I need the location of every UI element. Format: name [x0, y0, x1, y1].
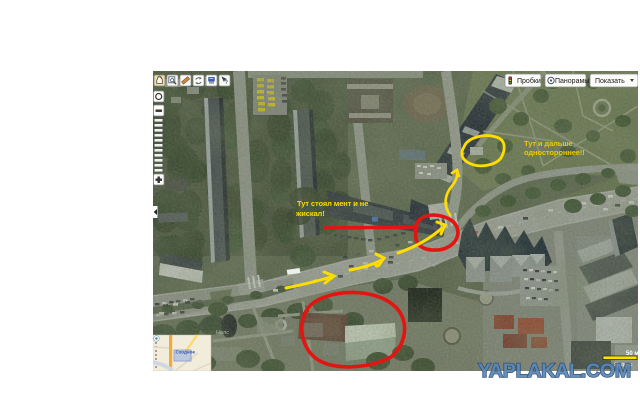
svg-text:Пробки: Пробки: [517, 77, 541, 85]
svg-text:Панорамы: Панорамы: [555, 78, 589, 85]
svg-text:Показать: Показать: [595, 78, 625, 85]
svg-text:одностороннее!!: одностороннее!!: [524, 148, 585, 157]
svg-text:Сходное: Сходное: [176, 350, 196, 355]
svg-text:YAPLAKAL.COM: YAPLAKAL.COM: [478, 360, 631, 381]
svg-text:Тут и дальше: Тут и дальше: [524, 139, 573, 148]
svg-text:жискал!: жискал!: [295, 209, 325, 218]
svg-text:Тут стоял мент и не: Тут стоял мент и не: [297, 199, 368, 208]
